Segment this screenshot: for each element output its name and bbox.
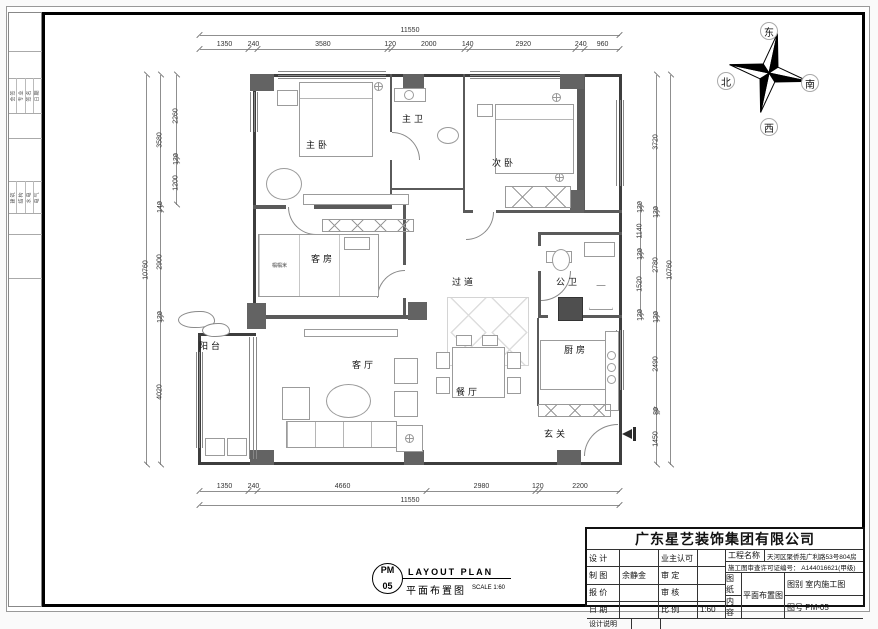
- dim-segment: 3580: [258, 38, 388, 49]
- sheet-code-top: PM: [381, 564, 395, 577]
- dim-segment: 2000: [392, 38, 465, 49]
- strip-divider: [9, 213, 43, 214]
- room-label-second-bedroom: 次卧: [492, 156, 516, 169]
- ceiling-lamp-icon: [552, 93, 561, 102]
- design-notes-cell: [661, 619, 863, 629]
- dim-line-left: 358014029001204020: [160, 75, 172, 465]
- chaise: [282, 387, 310, 420]
- window: [196, 352, 203, 448]
- room-label-living-room: 客厅: [352, 358, 376, 371]
- room-label-kitchen: 厨房: [564, 343, 588, 356]
- dim-segment: 1200: [177, 161, 188, 205]
- wall: [390, 74, 392, 132]
- dim-line-right-total: 10760: [670, 75, 682, 465]
- balcony-sliding-door: [249, 337, 257, 459]
- margin-label: 专业: [17, 78, 25, 113]
- field-value: [698, 585, 725, 601]
- compass-rose: [727, 31, 811, 115]
- toilet: [437, 127, 459, 144]
- design-notes-label: 设计说明: [587, 619, 632, 629]
- sheet-code-badge: PM 05: [372, 563, 403, 594]
- dim-segment: 4660: [258, 480, 427, 491]
- column: [247, 303, 266, 329]
- wall: [390, 188, 465, 190]
- stove-burner: [607, 351, 616, 360]
- dining-chair: [482, 335, 498, 346]
- window: [616, 100, 624, 186]
- toilet: [552, 249, 570, 271]
- margin-signoff-cell: 会签专业签名日期: [9, 78, 41, 113]
- sheet-meta: 图别 室内施工图 图号 PM-05: [785, 573, 863, 618]
- company-name: 广东星艺装饰集团有限公司: [587, 529, 863, 550]
- project-name-label: 工程名称: [726, 550, 765, 561]
- title-block-right: 工程名称 天河区聚侨苑广利路53号804房 施工图审查许可证编号： A14401…: [726, 550, 863, 618]
- field-value: 1:60: [698, 602, 725, 618]
- dim-segment: 2490: [657, 319, 668, 409]
- nightstand: [477, 104, 493, 117]
- margin-label: 会签: [9, 78, 17, 113]
- field-value: [698, 550, 725, 566]
- dim-segment: 3720: [657, 75, 668, 210]
- room-label-dining-room: 餐厅: [456, 385, 480, 398]
- wall: [253, 315, 413, 319]
- field-label: 报 价: [587, 585, 620, 601]
- ceiling-lamp-icon: [555, 173, 564, 182]
- tv-cabinet: [304, 329, 398, 337]
- sheet-label: 图 纸: [726, 573, 741, 596]
- sheet-code-bottom: 05: [382, 580, 392, 593]
- field-value: [620, 602, 659, 618]
- field-value: [620, 550, 659, 566]
- dim-segment: 2980: [427, 480, 535, 491]
- wardrobe: [505, 186, 571, 208]
- entry-arrow-bar: [633, 427, 636, 441]
- drawing-title-cn: 平面布置图: [406, 582, 466, 597]
- dim-segment: 2200: [540, 480, 620, 491]
- dim-line-bottom-total: 11550: [200, 494, 620, 506]
- compass-north-label: 北: [717, 72, 735, 90]
- room-label-guest-room: 客房: [311, 252, 335, 265]
- washing-machine: [205, 438, 225, 456]
- dim-segment: 960: [585, 38, 620, 49]
- dim-line-bottom: 1350240466029801202200: [200, 480, 620, 492]
- sheet-number: 图号 PM-05: [785, 596, 863, 618]
- dim-segment: 2260: [177, 75, 188, 157]
- table-plant-icon: [405, 434, 414, 443]
- margin-discipline-cell: 建筑结构水电电气: [9, 181, 41, 213]
- strip-divider: [9, 51, 43, 52]
- sink-basin: [404, 90, 414, 100]
- dining-chair: [456, 335, 472, 346]
- wall: [403, 205, 406, 265]
- dim-segment: 11550: [200, 24, 620, 35]
- dining-chair: [436, 352, 450, 369]
- field-label: 设 计: [587, 550, 620, 566]
- sofa: [286, 421, 397, 448]
- coffee-table: [326, 384, 371, 418]
- shoe-cabinet: [538, 404, 611, 417]
- compass-west-label: 西: [760, 118, 778, 136]
- column: [250, 74, 274, 91]
- dim-segment: 1520: [641, 256, 652, 312]
- dim-segment: 1450: [657, 412, 668, 465]
- nightstand: [277, 90, 298, 106]
- strip-divider: [9, 278, 43, 279]
- dim-segment: 1350: [200, 480, 249, 491]
- margin-label: 建筑: [9, 181, 17, 213]
- room-label-tatami: 榻榻米: [272, 262, 287, 269]
- design-notes-cell: [632, 619, 661, 629]
- dim-line-top: 1350240358012020001402920240960: [200, 38, 620, 50]
- dim-line-right-inner: 12011401201520120: [640, 205, 652, 317]
- content-value: 平面布置图: [742, 573, 785, 618]
- compass-south-label: 南: [801, 74, 819, 92]
- strip-divider: [9, 138, 43, 139]
- room-label-balcony: 阳台: [199, 339, 223, 352]
- dim-segment: 1350: [200, 38, 249, 49]
- column: [570, 190, 584, 213]
- field-label: 比 例: [659, 602, 698, 618]
- column: [560, 74, 584, 89]
- column: [408, 302, 427, 320]
- dim-line-top-total: 11550: [200, 24, 620, 36]
- dim-segment: 11550: [200, 494, 620, 505]
- field-label: 审 核: [659, 585, 698, 601]
- sheet-content-labels: 图 纸 内 容: [726, 573, 742, 618]
- margin-label: 结构: [17, 181, 25, 213]
- field-label: 业主认可: [659, 550, 698, 566]
- dim-segment: 2920: [470, 38, 576, 49]
- field-value: 余静金: [620, 567, 659, 583]
- dining-chair: [436, 377, 450, 394]
- bath-vanity: [584, 242, 615, 257]
- wall: [537, 318, 539, 406]
- dining-chair: [507, 377, 521, 394]
- dim-segment: 1140: [641, 209, 652, 251]
- room-label-corridor: 过道: [452, 275, 476, 288]
- dim-segment: 10760: [671, 75, 682, 465]
- dim-segment: 4020: [161, 319, 172, 465]
- drawing-title: PM 05 LAYOUT PLAN 平面布置图 SCALE 1:60: [372, 560, 512, 598]
- wall: [253, 205, 286, 209]
- wardrobe: [322, 219, 414, 232]
- washing-machine: [227, 438, 247, 456]
- wall: [314, 205, 392, 209]
- margin-label: 水电: [26, 181, 34, 213]
- drawing-scale: SCALE 1:60: [472, 585, 505, 591]
- dim-segment: 3580: [161, 75, 172, 205]
- field-label: 制 图: [587, 567, 620, 583]
- project-name-value: 天河区聚侨苑广利路53号804房: [765, 550, 863, 561]
- dresser: [303, 194, 409, 205]
- washing-machine: [558, 297, 583, 321]
- margin-label: 电气: [34, 181, 41, 213]
- binding-margin-strip: 会签专业签名日期 建筑结构水电电气: [8, 12, 42, 607]
- field-value: [620, 585, 659, 601]
- column: [403, 74, 424, 89]
- room-label-master-bath: 主卫: [402, 112, 426, 125]
- armchair: [394, 391, 418, 417]
- room-label-master-bedroom: 主卧: [306, 138, 330, 151]
- field-label: 审 定: [659, 567, 698, 583]
- dim-line-left-inner: 22601201200: [176, 75, 188, 205]
- strip-divider: [9, 234, 43, 235]
- title-block-left: 设 计 业主认可 制 图 余静金 审 定 报 价 审 核 日 期 比 例: [587, 550, 726, 618]
- dim-segment: 120: [641, 313, 652, 317]
- entry-arrow-icon: [622, 429, 632, 439]
- ceiling-lamp-icon: [374, 82, 383, 91]
- window: [470, 71, 560, 79]
- wall: [496, 210, 622, 213]
- sheet-category: 图别 室内施工图: [785, 573, 863, 596]
- armchair: [394, 358, 418, 384]
- content-label: 内 容: [726, 596, 741, 618]
- dim-segment: 2900: [161, 210, 172, 315]
- window: [278, 71, 386, 79]
- ottoman: [266, 168, 302, 200]
- wall: [538, 232, 622, 235]
- stove-burner: [607, 363, 616, 372]
- column: [557, 450, 581, 465]
- license-number: 施工图审查许可证编号： A144016621(甲级): [726, 562, 863, 572]
- compass-east-label: 东: [760, 22, 778, 40]
- field-value: [698, 567, 725, 583]
- desk: [344, 237, 370, 250]
- margin-label: 签名: [26, 78, 34, 113]
- title-block: 广东星艺装饰集团有限公司 设 计 业主认可 制 图 余静金 审 定 报 价 审 …: [585, 527, 865, 607]
- strip-divider: [9, 113, 43, 114]
- wall: [538, 315, 548, 318]
- room-label-entry: 玄关: [544, 427, 568, 440]
- plant: [202, 323, 230, 337]
- margin-label: 日期: [34, 78, 41, 113]
- room-label-public-bath: 公卫: [556, 275, 580, 288]
- window: [250, 92, 258, 132]
- stove-burner: [607, 375, 616, 384]
- column: [404, 450, 424, 465]
- dining-chair: [507, 352, 521, 369]
- field-label: 日 期: [587, 602, 620, 618]
- drawing-title-en: LAYOUT PLAN: [408, 567, 493, 577]
